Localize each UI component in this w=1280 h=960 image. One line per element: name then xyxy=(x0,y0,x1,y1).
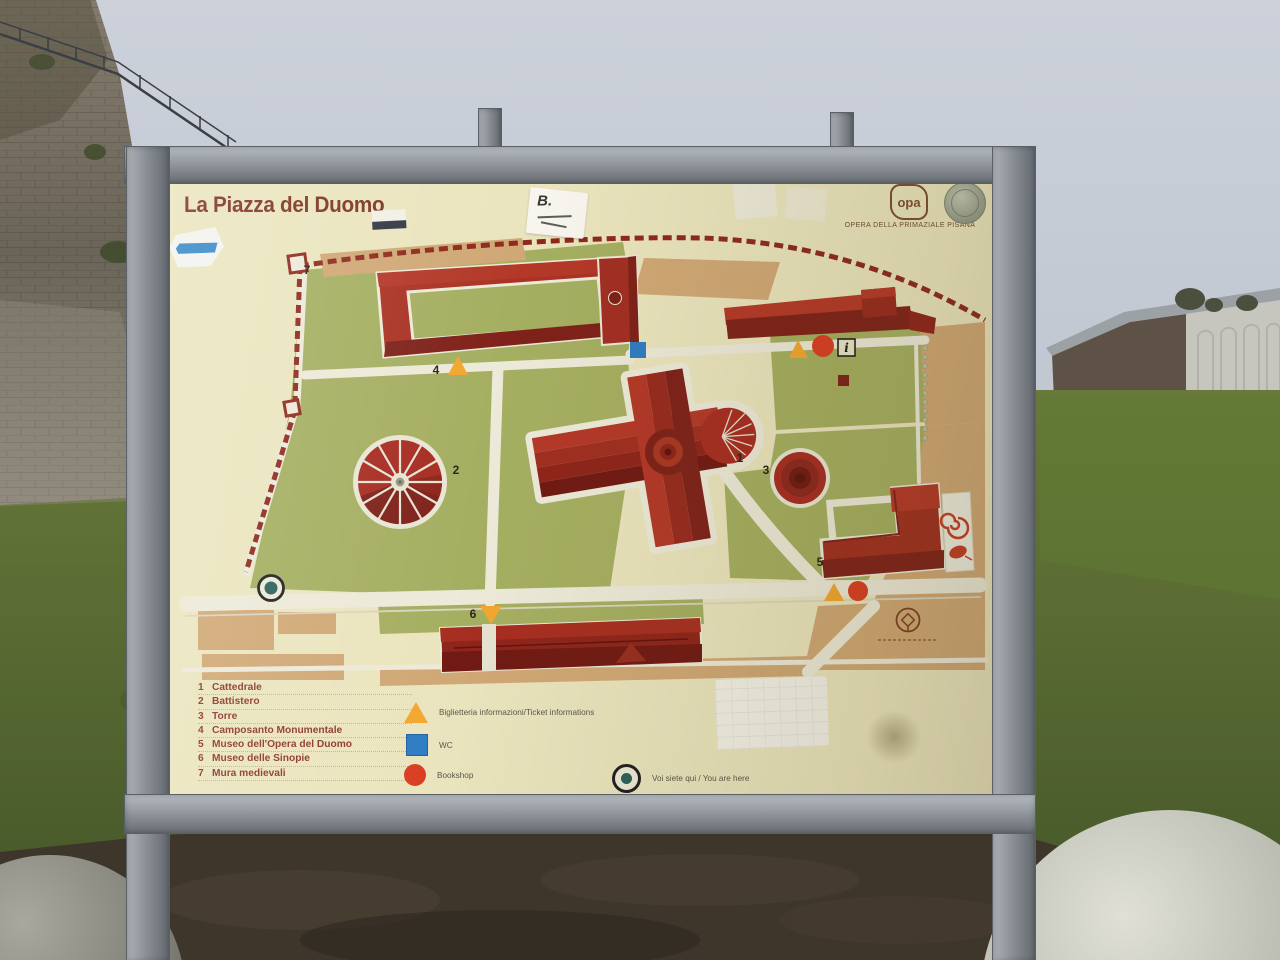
sign-frame-bottom-bar xyxy=(124,794,1036,834)
legend-row: 6 Museo delle Sinopie xyxy=(198,753,412,766)
legend-name: Museo dell'Opera del Duomo xyxy=(212,739,352,751)
symbol-row-bookshop: Bookshop xyxy=(404,764,473,786)
wc-marker xyxy=(630,342,646,358)
target-marker-icon xyxy=(612,764,641,793)
torn-sticker-patch xyxy=(715,676,829,750)
legend-name: Cattedrale xyxy=(212,682,262,694)
bookshop-marker xyxy=(812,335,834,357)
symbol-row-tickets: Biglietteria informazioni/Ticket informa… xyxy=(404,702,594,723)
legend-row: 3 Torre xyxy=(198,711,412,724)
legend-row: 2 Battistero xyxy=(198,696,412,709)
snail-logo xyxy=(941,492,974,572)
circle-marker-icon xyxy=(404,764,426,786)
legend-name: Battistero xyxy=(212,696,260,708)
legend-name: Mura medievali xyxy=(212,768,286,780)
sign-frame-left-post xyxy=(126,146,170,960)
map-label-2: 2 xyxy=(453,463,460,477)
sticker-remnant xyxy=(785,187,827,222)
sign-frame-right-post xyxy=(992,146,1036,960)
symbol-row-wc: WC xyxy=(406,734,453,756)
symbol-label: Voi siete qui / You are here xyxy=(652,774,749,783)
opa-logo: opa xyxy=(890,184,928,220)
triangle-marker-icon xyxy=(404,702,428,723)
symbol-row-you-are-here: Voi siete qui / You are here xyxy=(612,764,749,793)
graffiti-sticker: B. xyxy=(526,187,588,239)
symbol-label: WC xyxy=(439,741,453,750)
legend-name: Museo delle Sinopie xyxy=(212,753,310,765)
map-label-5: 5 xyxy=(817,555,824,569)
legend-name: Camposanto Monumentale xyxy=(212,725,342,737)
legend-row: 1 Cattedrale xyxy=(198,682,412,695)
museo-sinopie-shape xyxy=(440,618,702,672)
tree xyxy=(1236,295,1258,311)
bookshop-marker xyxy=(848,581,868,601)
sign-face: i 1 xyxy=(168,182,992,794)
legend-row: 7 Mura medievali xyxy=(198,768,412,781)
graffiti-sticker xyxy=(372,209,407,230)
baptistery-shape xyxy=(353,435,447,529)
sign-frame-top-bar xyxy=(124,146,1036,184)
svg-text:i: i xyxy=(844,341,849,355)
tree xyxy=(1205,298,1223,312)
legend-row: 5 Museo dell'Opera del Duomo xyxy=(198,739,412,752)
map-label-1: 1 xyxy=(737,451,744,465)
leaning-tower-shape xyxy=(770,448,830,508)
sinopie-chimney xyxy=(482,624,496,671)
tree xyxy=(1175,288,1205,310)
publisher-seal xyxy=(944,182,986,224)
legend-name: Torre xyxy=(212,711,237,723)
map-label-3: 3 xyxy=(763,463,770,477)
symbol-label: Bookshop xyxy=(437,771,473,780)
dirt-smudge xyxy=(866,710,922,764)
wall-tower xyxy=(284,400,300,416)
legend-list: 1 Cattedrale 2 Battistero 3 Torre 4 Camp… xyxy=(198,682,412,782)
map-label-6: 6 xyxy=(470,607,477,621)
symbol-label: Biglietteria informazioni/Ticket informa… xyxy=(439,708,594,717)
small-building-dot xyxy=(838,375,849,386)
map-sign-panel: i 1 xyxy=(163,177,997,799)
map-label-7: 7 xyxy=(304,263,311,277)
square-marker-icon xyxy=(406,734,428,756)
sticker-remnant xyxy=(733,182,778,220)
sign-title: La Piazza del Duomo xyxy=(184,192,384,218)
photo-of-piazza-map-sign: i 1 xyxy=(0,0,1280,960)
legend-row: 4 Camposanto Monumentale xyxy=(198,725,412,738)
map-label-4: 4 xyxy=(433,363,440,377)
